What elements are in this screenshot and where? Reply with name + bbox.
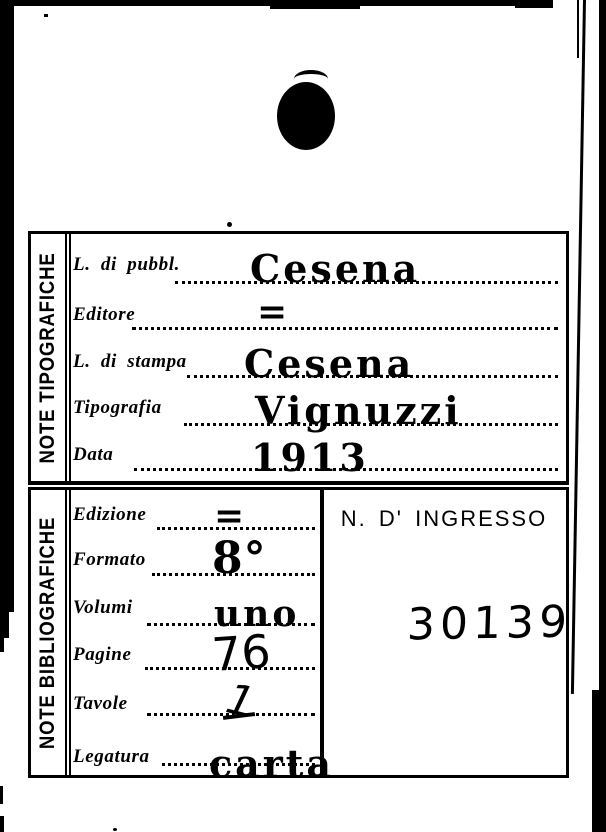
punch-hole	[277, 82, 335, 150]
scan-edge-left-taper	[0, 612, 9, 638]
scan-edge-top-blob2	[515, 0, 553, 8]
scan-edge-right-wedge	[592, 690, 606, 832]
scan-edge-left	[0, 0, 14, 612]
field-value-legatura: carta	[209, 745, 334, 783]
field-label-edizione: Edizione	[73, 505, 146, 524]
card-edge-line	[571, 0, 586, 694]
field-value-formato: 8°	[212, 537, 267, 581]
note-bibliografiche-table: NOTE BIBLIOGRAFICHE Edizione = Formato 8…	[28, 487, 569, 778]
ink-speck	[227, 222, 232, 227]
dotted-line	[132, 327, 558, 330]
field-label-legatura: Legatura	[73, 747, 150, 766]
catalog-card-scan: NOTE TIPOGRAFICHE L. di pubbl. Cesena Ed…	[0, 0, 606, 832]
field-label-data: Data	[73, 445, 113, 464]
punch-hole-arc	[294, 70, 328, 88]
scan-edge-left-low	[0, 786, 3, 804]
field-label-tipografia: Tipografia	[73, 398, 162, 417]
note-tipografiche-table: NOTE TIPOGRAFICHE L. di pubbl. Cesena Ed…	[28, 231, 569, 485]
field-label-formato: Formato	[73, 550, 146, 569]
section-title-column: NOTE BIBLIOGRAFICHE	[31, 490, 71, 775]
field-value-editore: =	[257, 294, 290, 330]
field-value-tipografia: Vignuzzi	[255, 392, 462, 430]
card-edge-tick	[577, 0, 579, 58]
field-value-l-di-stampa: Cesena	[244, 345, 414, 383]
field-value-l-di-pubbl: Cesena	[250, 250, 420, 288]
section-title: NOTE BIBLIOGRAFICHE	[36, 516, 60, 748]
field-value-edizione: =	[214, 498, 247, 534]
section-title: NOTE TIPOGRAFICHE	[36, 252, 60, 463]
section-title-column: NOTE TIPOGRAFICHE	[31, 234, 71, 481]
scan-edge-top-blob	[270, 0, 360, 9]
field-label-pagine: Pagine	[73, 645, 132, 664]
ink-speck	[113, 828, 117, 831]
cell-divider	[320, 490, 324, 775]
scan-edge-left-low2	[0, 816, 4, 832]
ingresso-number: 30139	[406, 601, 572, 648]
scan-speck	[44, 14, 48, 17]
field-label-editore: Editore	[73, 305, 135, 324]
field-label-l-di-stampa: L. di stampa	[73, 352, 187, 371]
field-label-volumi: Volumi	[73, 598, 133, 617]
scan-edge-left-tip	[0, 638, 4, 652]
field-value-data: 1913	[251, 439, 369, 477]
ingresso-header: N. D' INGRESSO	[324, 506, 564, 532]
field-value-pagine: 76	[210, 628, 272, 678]
field-label-tavole: Tavole	[73, 694, 128, 713]
field-label-l-di-pubbl: L. di pubbl.	[73, 255, 180, 274]
